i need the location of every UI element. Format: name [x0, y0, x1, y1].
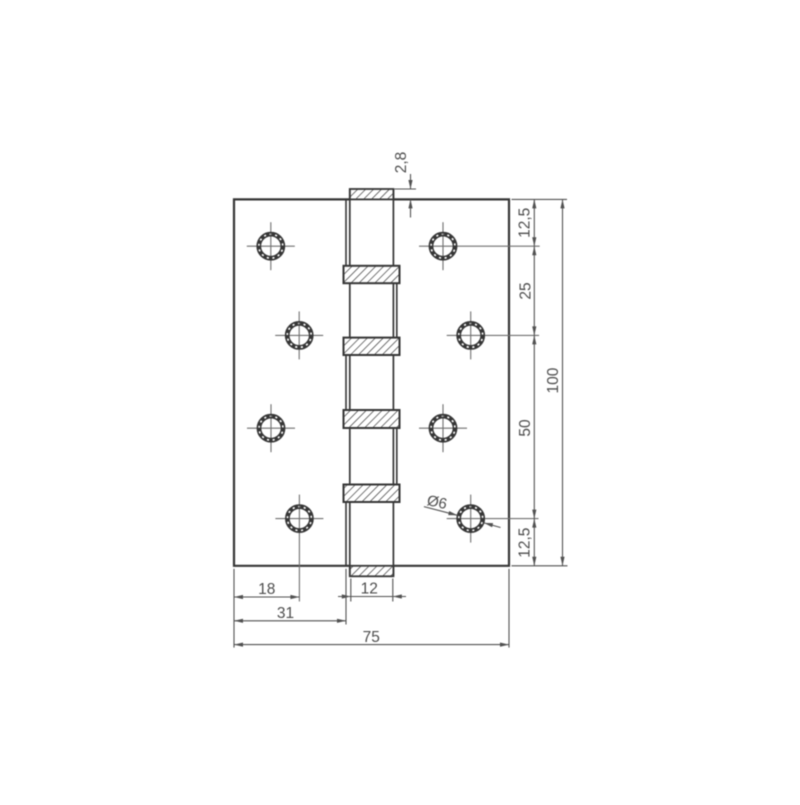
- svg-text:75: 75: [363, 629, 380, 646]
- svg-text:100: 100: [545, 367, 562, 393]
- svg-text:18: 18: [258, 581, 275, 598]
- svg-text:2,8: 2,8: [393, 152, 410, 174]
- svg-text:31: 31: [277, 605, 294, 622]
- svg-text:50: 50: [517, 419, 534, 437]
- svg-text:12,5: 12,5: [517, 208, 534, 238]
- svg-text:12,5: 12,5: [516, 528, 533, 558]
- svg-text:12: 12: [361, 581, 378, 598]
- svg-text:25: 25: [517, 282, 534, 299]
